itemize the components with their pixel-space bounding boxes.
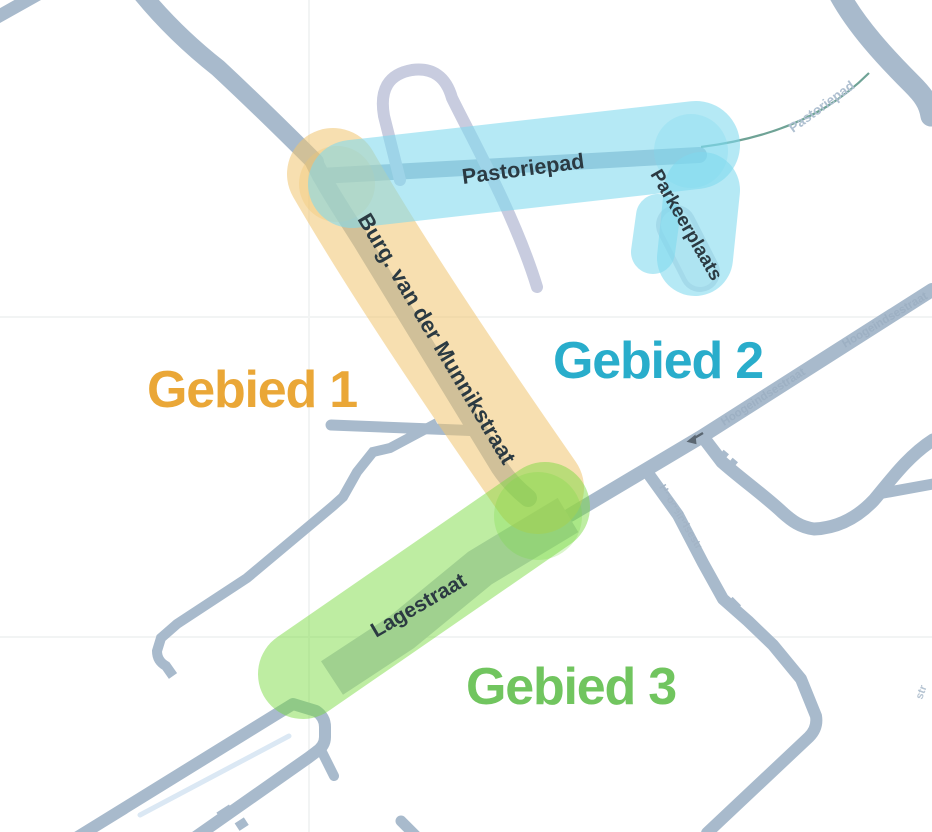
svg-text:Gebied 1: Gebied 1	[147, 361, 357, 419]
svg-text:Gebied 3: Gebied 3	[466, 658, 676, 716]
svg-text:Gebied 2: Gebied 2	[553, 332, 763, 390]
